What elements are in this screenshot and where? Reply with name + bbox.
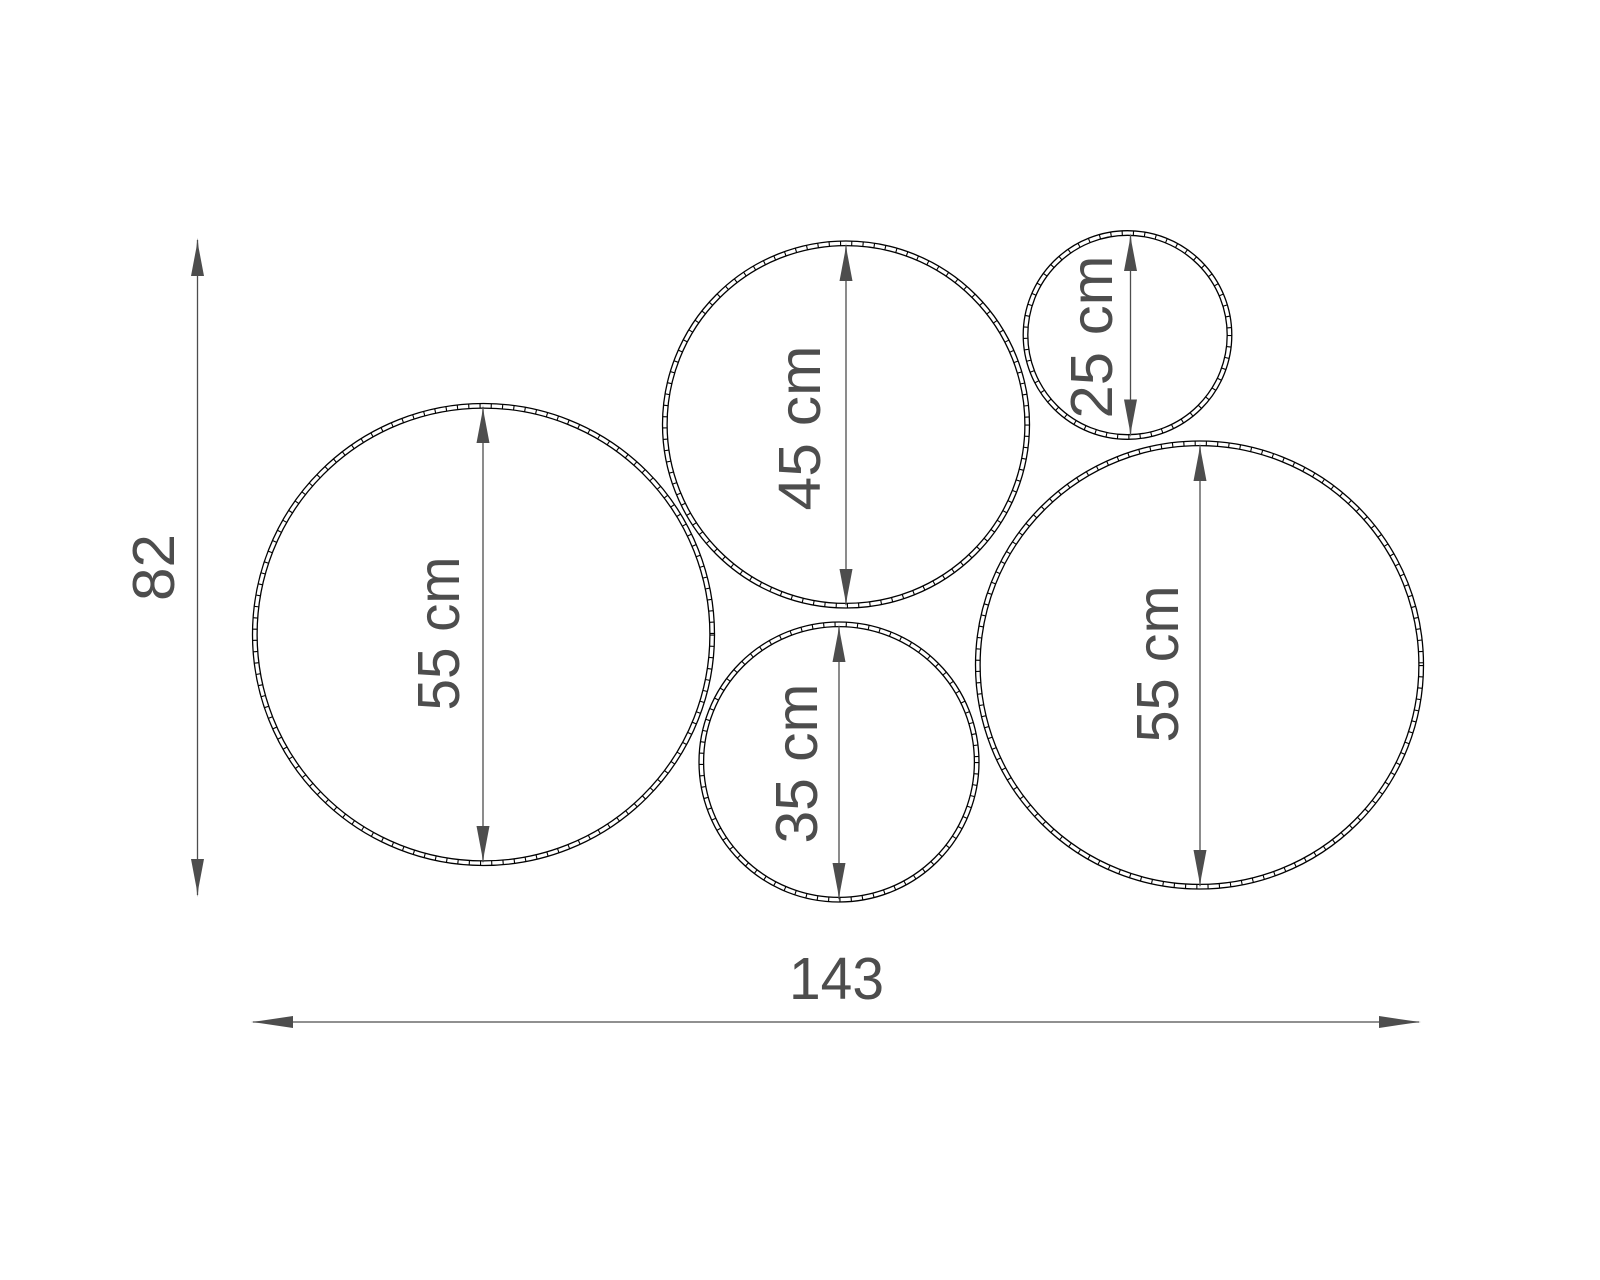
svg-text:82: 82 (121, 534, 187, 601)
svg-text:35 cm: 35 cm (764, 684, 830, 844)
svg-text:45 cm: 45 cm (767, 346, 833, 511)
svg-text:25 cm: 25 cm (1059, 256, 1125, 419)
svg-text:143: 143 (789, 946, 884, 1012)
svg-text:55 cm: 55 cm (406, 557, 472, 711)
svg-text:55 cm: 55 cm (1125, 586, 1191, 743)
